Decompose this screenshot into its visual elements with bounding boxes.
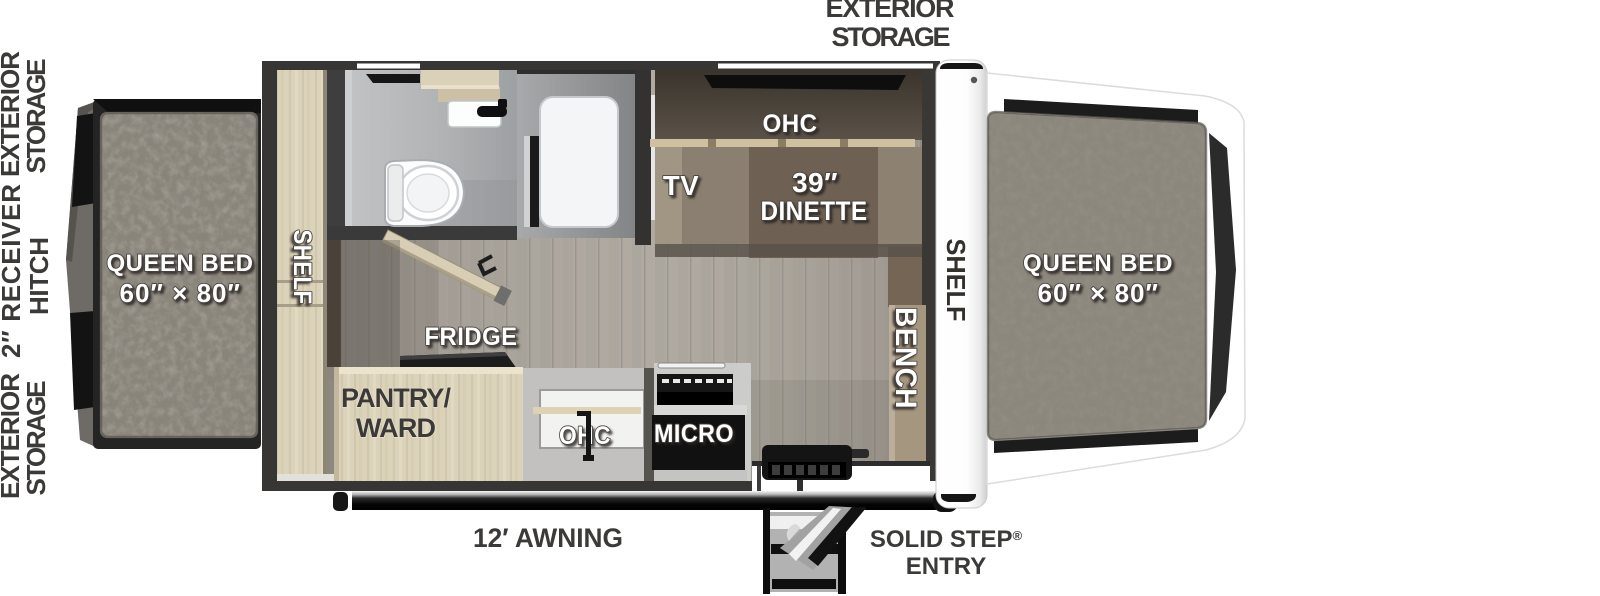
- svg-text:ENTRY: ENTRY: [906, 553, 986, 580]
- svg-text:2″ RECEIVER: 2″ RECEIVER: [0, 184, 26, 358]
- svg-text:HITCH: HITCH: [24, 237, 54, 315]
- svg-text:EXTERIOR: EXTERIOR: [826, 0, 955, 23]
- svg-text:12′ AWNING: 12′ AWNING: [473, 523, 623, 553]
- svg-text:MICRO: MICRO: [654, 420, 734, 448]
- svg-text:STORAGE: STORAGE: [21, 381, 51, 496]
- svg-text:STORAGE: STORAGE: [21, 59, 51, 174]
- svg-text:60″ × 80″: 60″ × 80″: [1038, 278, 1159, 308]
- svg-text:QUEEN BED: QUEEN BED: [1023, 250, 1173, 277]
- svg-text:BENCH: BENCH: [889, 307, 922, 409]
- svg-text:SOLID STEP®: SOLID STEP®: [870, 526, 1023, 553]
- svg-text:PANTRY/: PANTRY/: [341, 383, 451, 413]
- svg-text:OHC: OHC: [763, 110, 818, 138]
- svg-text:TV: TV: [663, 170, 699, 201]
- svg-text:QUEEN BED: QUEEN BED: [107, 250, 254, 277]
- svg-text:FRIDGE: FRIDGE: [425, 323, 518, 351]
- svg-text:39″: 39″: [792, 167, 838, 198]
- svg-text:DINETTE: DINETTE: [761, 196, 868, 226]
- svg-text:SHELF: SHELF: [288, 230, 316, 305]
- svg-text:WARD: WARD: [356, 413, 436, 443]
- svg-text:OHC: OHC: [559, 422, 611, 450]
- svg-text:SHELF: SHELF: [941, 239, 971, 322]
- svg-text:STORAGE: STORAGE: [832, 22, 951, 52]
- svg-text:60″ × 80″: 60″ × 80″: [120, 278, 241, 308]
